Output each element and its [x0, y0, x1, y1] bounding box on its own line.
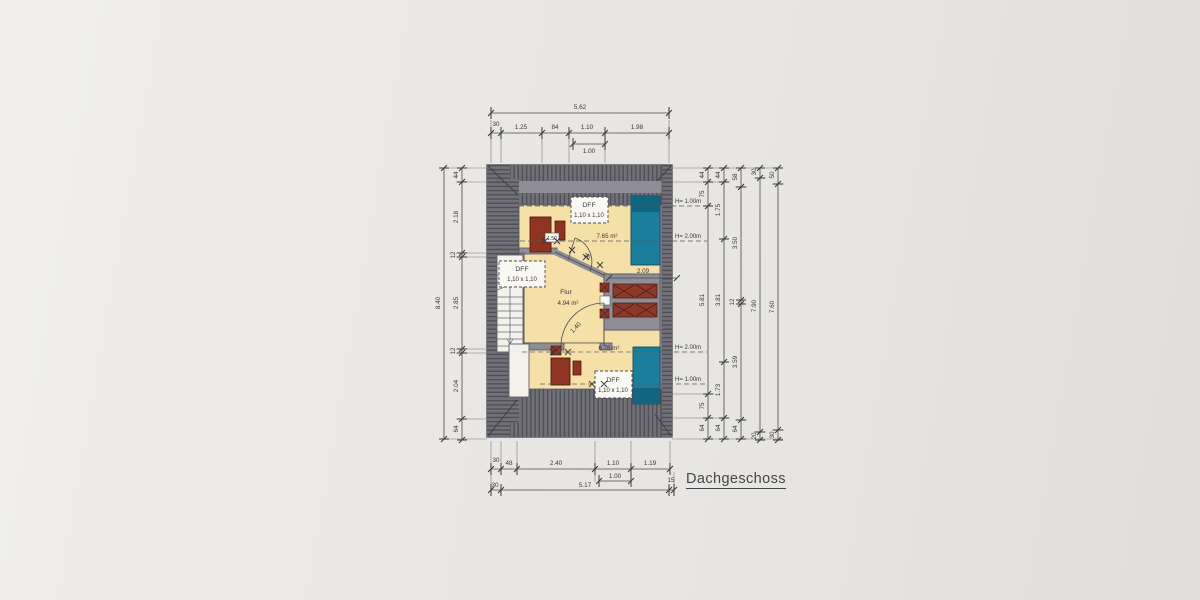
dim-bottom-seg: 1.10 [607, 460, 620, 467]
dim-bottom-seg: 2.40 [550, 460, 563, 467]
dim-right-c1: 5.81 [699, 293, 706, 306]
dim-right-c4: 30 [751, 168, 758, 176]
flur-name: Flur [560, 289, 572, 296]
dim-right-c5: 50 [769, 171, 776, 179]
storage-shelf-1 [613, 284, 657, 298]
dim-bottom-seg: 48 [505, 460, 513, 467]
dim-left-seg: 44 [453, 171, 460, 179]
dim-top-total: 5.62 [574, 104, 587, 111]
dim-left-seg: 2.04 [453, 379, 460, 392]
dim-right-c1: 44 [699, 171, 706, 179]
dim-bottom-row2: 15 [667, 477, 675, 484]
dim-right-c2: 3.81 [715, 293, 722, 306]
shelf-width-label: 2.09 [637, 268, 650, 275]
dim-right-c3: 3.50 [732, 236, 739, 249]
dim-left-seg: 64 [453, 425, 460, 433]
dim-top-seg: 1.10 [581, 124, 594, 131]
roof-window-top [571, 197, 608, 223]
dim-top-window: 1.00 [583, 148, 596, 155]
dim-right-c4: 20 [751, 432, 758, 440]
dff-label: DFF [582, 202, 595, 209]
dim-top-seg: 1.98 [631, 124, 644, 131]
dim-left-seg: 12 [450, 347, 457, 355]
drawing-title: Dachgeschoss [686, 471, 786, 489]
roof-window-left [499, 261, 545, 287]
h-marker-1: H= 1.00m [675, 199, 701, 205]
wall-label-box [600, 296, 610, 305]
dim-right-c5: 7.60 [769, 300, 776, 313]
dim-right-c3: 3.59 [732, 355, 739, 368]
room-bottom-area: 6.78 m² [599, 345, 620, 352]
h-marker-3: H= 2.00m [675, 345, 701, 351]
floor-plan-svg: DFF 1,10 x 1,10 DFF 1,10 x 1,10 DFF 1,10… [0, 0, 1200, 600]
h-marker-4: H= 1.00m [675, 377, 701, 383]
dim-bottom-seg: 30 [492, 457, 500, 464]
dim-left-total: 8.40 [435, 296, 442, 309]
dim-top-seg: 30 [492, 121, 500, 128]
dim-right-c3: 12 [729, 298, 736, 306]
dim-right-c1: 75 [699, 190, 706, 198]
flur-area: 4.94 m² [558, 300, 579, 307]
dim-right-c3: 64 [732, 425, 739, 433]
dim-right-c1: 64 [699, 424, 706, 432]
h-marker-2: H= 2.00m [675, 234, 701, 240]
height-marker-labels: H= 1.00m H= 2.00m H= 2.00m H= 1.00m [675, 199, 701, 383]
fixture-bottom-left [551, 358, 570, 385]
dimension-chain-right: 44 75 5.81 75 64 44 1.75 3.81 1.73 64 58… [699, 165, 783, 443]
dff-label: DFF [515, 266, 528, 273]
dim-left-seg: 2.85 [453, 296, 460, 309]
dim-bottom-window: 1.00 [609, 473, 622, 480]
dim-right-c4: 7.90 [751, 299, 758, 312]
dim-left-seg: 12 [450, 251, 457, 259]
dim-top-seg: 84 [551, 124, 559, 131]
dimension-chain-bottom: 30 48 2.40 1.10 1.19 1.00 30 5.17 15 [488, 457, 677, 496]
dim-bottom-row2: 5.17 [579, 482, 592, 489]
dim-right-c5: 30 [769, 431, 776, 439]
dim-right-c2: 64 [715, 424, 722, 432]
dff-label: DFF [606, 377, 619, 384]
dimension-chain-left: 8.40 44 2.18 12 2.85 12 2.04 64 [435, 165, 467, 443]
dff-size: 1,10 x 1,10 [507, 277, 537, 283]
dim-right-c2: 1.73 [715, 383, 722, 396]
knee-wall-storage [600, 274, 660, 330]
fixture-small [573, 361, 581, 375]
dim-left-seg: 2.18 [453, 210, 460, 223]
dim-right-c1: 75 [699, 402, 706, 410]
dim-right-c2: 1.75 [715, 203, 722, 216]
dim-bottom-row2: 30 [491, 482, 499, 489]
dff-size: 1,10 x 1,10 [598, 388, 628, 394]
storage-shelf-2 [613, 303, 657, 317]
dim-top-seg: 1.25 [515, 124, 528, 131]
dim-right-c3: 58 [732, 173, 739, 181]
room-top-area: 7.65 m² [597, 233, 618, 240]
dim-bottom-seg: 1.19 [644, 460, 657, 467]
scanned-floor-plan-page: DFF 1,10 x 1,10 DFF 1,10 x 1,10 DFF 1,10… [0, 0, 1200, 600]
roof-hatch-top [487, 165, 672, 181]
dimension-chain-top: 5.62 30 1.25 84 1.10 1.98 1.00 [488, 104, 672, 155]
dff-size: 1,10 x 1,10 [574, 213, 604, 219]
dim-right-c2: 44 [715, 171, 722, 179]
